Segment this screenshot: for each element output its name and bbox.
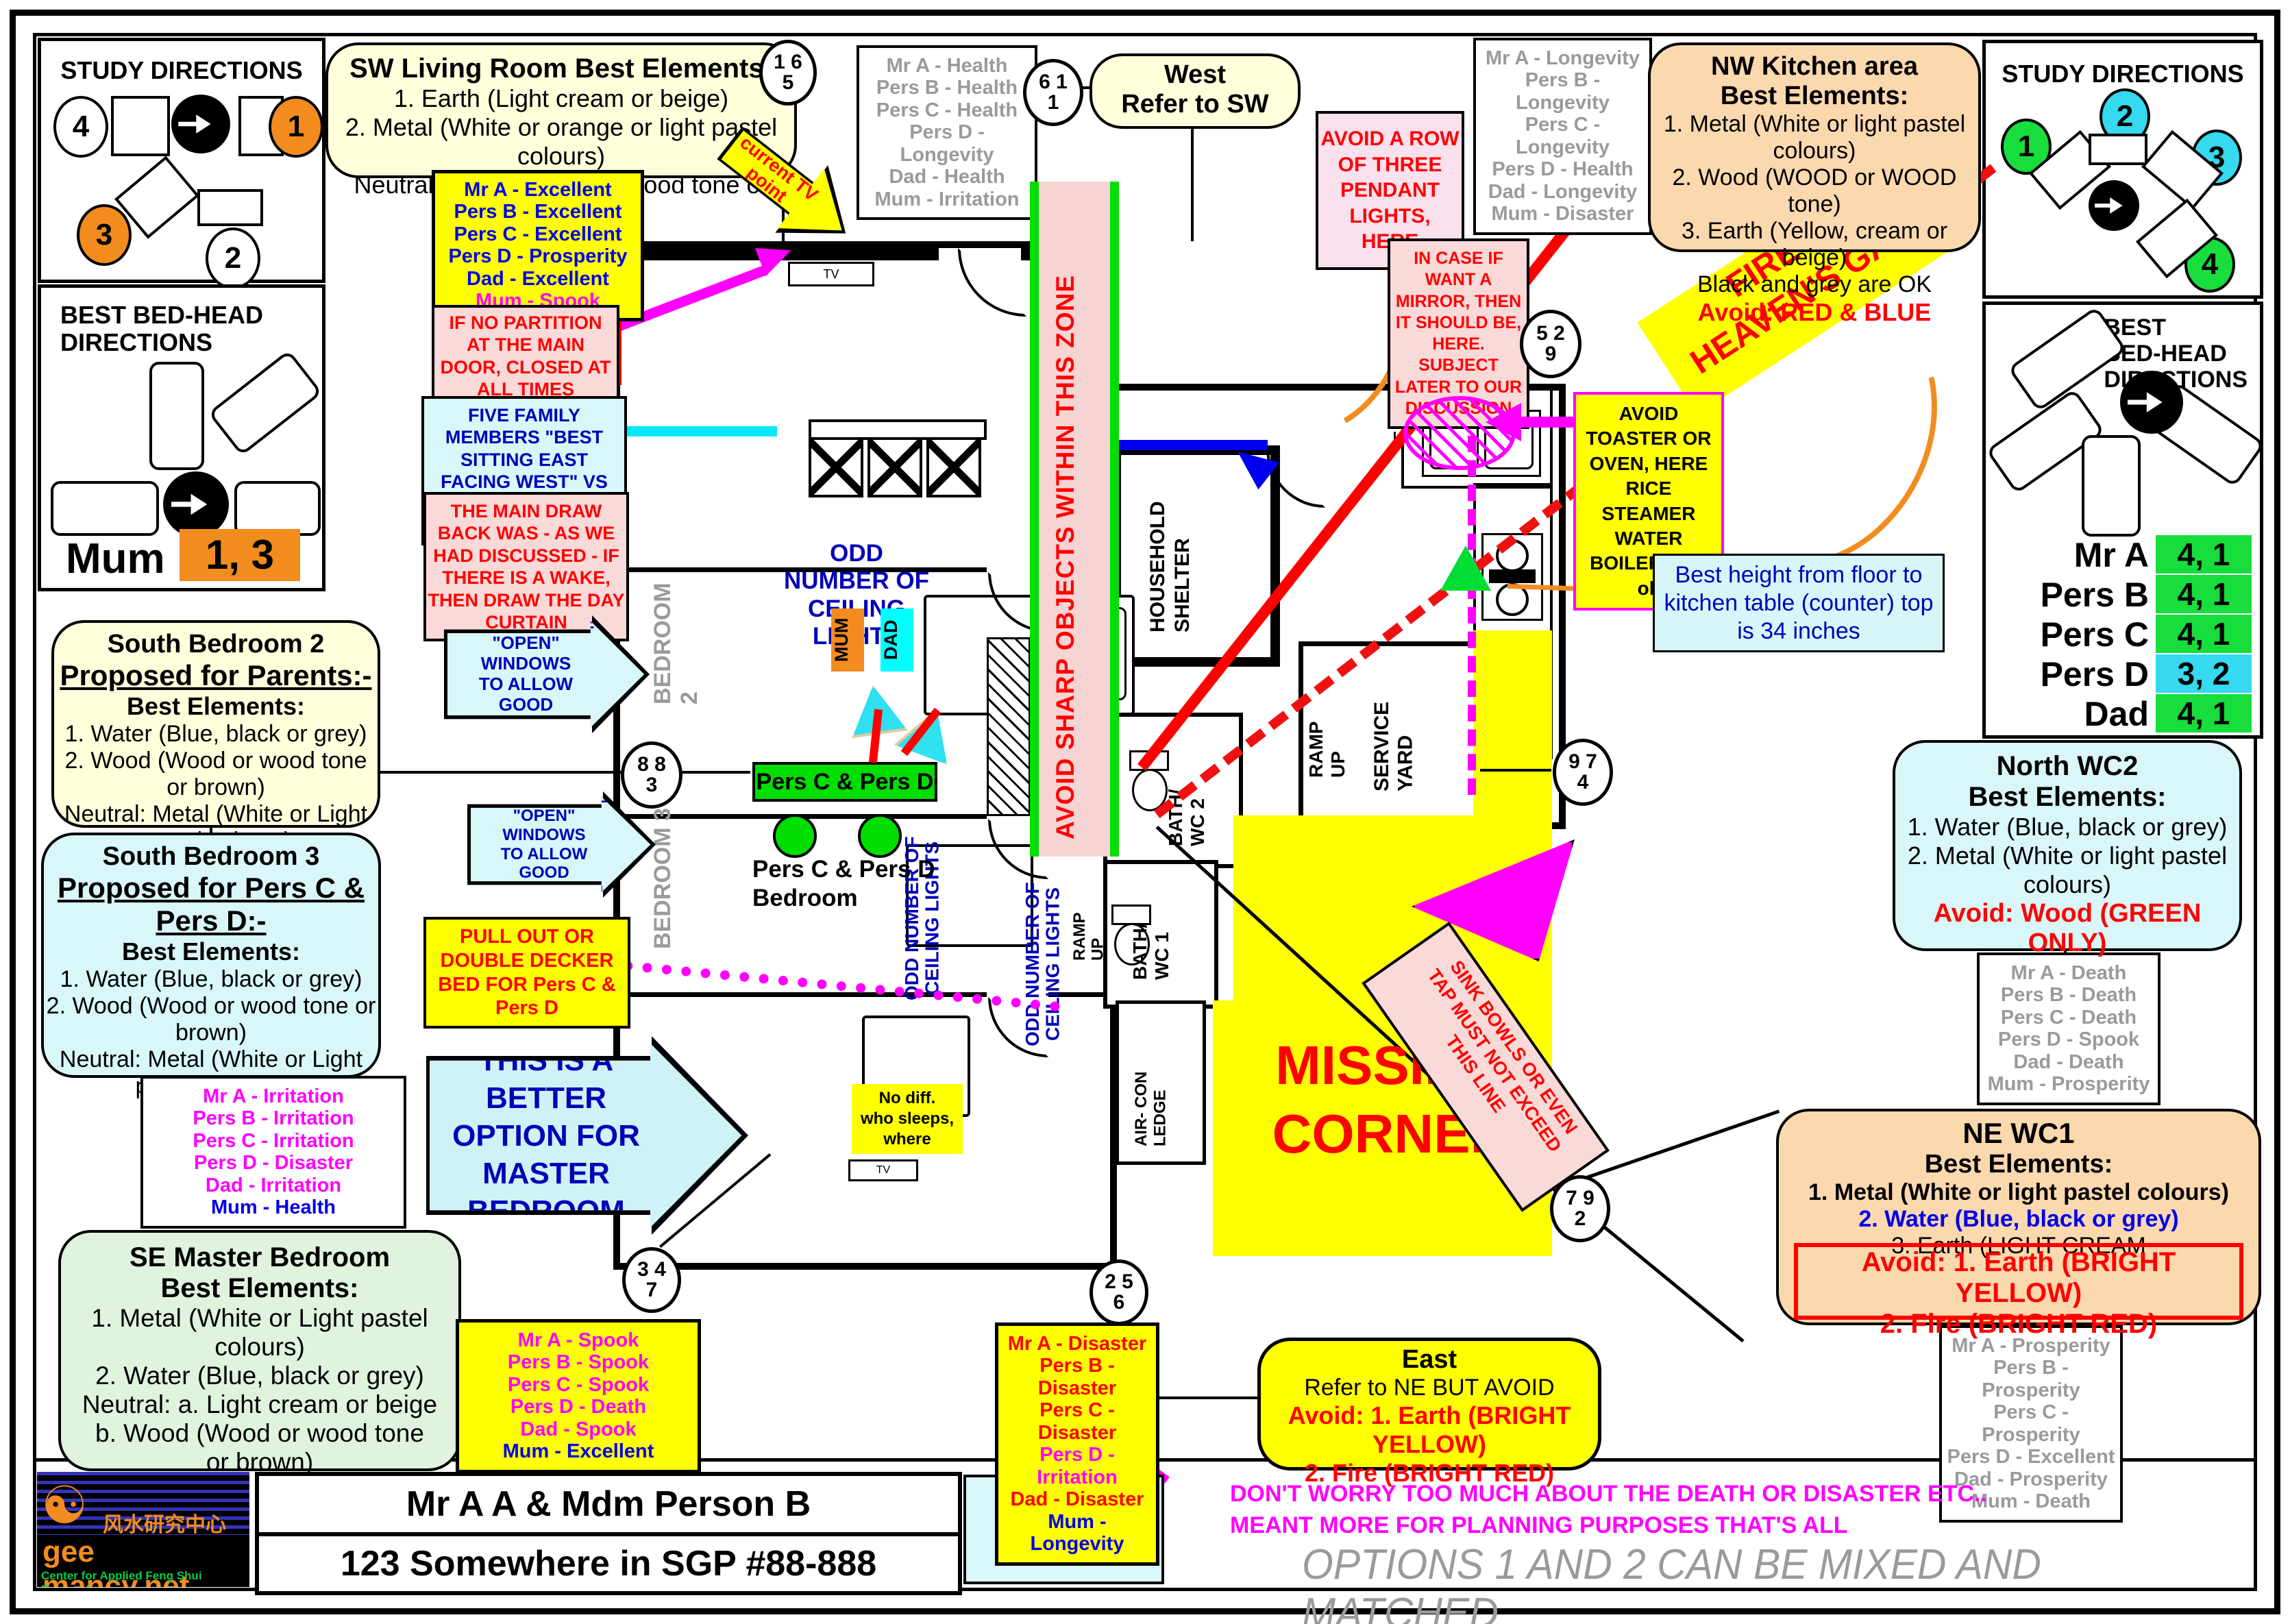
cyan-sitting-line [621, 426, 777, 436]
bedhead-row-name: Dad [2084, 694, 2149, 734]
stars-bottom: 1 [1048, 93, 1059, 113]
sb2-l2: 2. Wood (Wood or wood tone or brown) [54, 748, 378, 801]
member-row: Pers C - Irritation [146, 1130, 401, 1152]
member-row: Pers B - Spook [462, 1351, 695, 1373]
member-row: Mr A - Spook [462, 1329, 695, 1351]
newc1-l1: 1. Metal (White or light pastel colours) [1779, 1179, 2258, 1206]
sb2-l1: 1. Water (Blue, black or grey) [54, 721, 378, 748]
east-members-list: Mr A - DisasterPers B - DisasterPers C -… [995, 1322, 1159, 1566]
stars-bottom: 5 [783, 73, 794, 93]
logo-tagline: Center for Applied Feng Shui Research [41, 1569, 249, 1587]
connector [1191, 118, 1194, 241]
west-sub: Refer to SW [1092, 90, 1298, 119]
bedhead-row-name: Pers D [2041, 654, 2149, 694]
stars-circle-165: 1 65 [759, 40, 817, 106]
bedhead-right-title: BEST BED-HEAD DIRECTIONS [2104, 315, 2248, 393]
member-row: Mum - Disaster [1479, 203, 1647, 225]
aircon-ledge-label: AIR- CON LEDGE [1132, 1013, 1170, 1146]
stars-top: 8 8 [637, 754, 666, 775]
member-row: Mr A - Longevity [1479, 47, 1647, 69]
member-row: Pers D - Longevity [862, 121, 1032, 166]
member-row: Mr A - Death [1982, 962, 2155, 984]
member-row: Dad - Longevity [1479, 181, 1647, 203]
stars-top: 7 9 [1566, 1188, 1595, 1209]
member-row: Pers D - Irritation [1000, 1444, 1155, 1488]
nw-kitchen-l4: Black and grey are OK [1651, 271, 1978, 298]
sb3-be: Best Elements: [44, 937, 378, 966]
stars-bottom: 2 [1575, 1209, 1586, 1229]
bedhead-left-value: 1, 3 [180, 529, 300, 581]
nwc2-sub: Best Elements: [1895, 782, 2239, 813]
avoid-sharp-label: AVOID SHARP OBJECTS WITHIN THIS ZONE [1051, 202, 1080, 839]
green-dot [773, 814, 817, 858]
member-row: Mum - Longevity [1000, 1511, 1155, 1555]
east-l1: Refer to NE BUT AVOID [1261, 1375, 1598, 1401]
member-row: Dad - Disaster [1000, 1488, 1155, 1510]
mum-tag: MUM [831, 608, 864, 672]
se-spook-list: Mr A - SpookPers B - SpookPers C - Spook… [456, 1319, 701, 1473]
sofa-seat [926, 437, 981, 497]
good-qi-arrow-1: GOOD TO HAVE "OPEN" WINDOWS TO ALLOW GOO… [444, 615, 650, 733]
living-members-list: Mr A - ExcellentPers B - ExcellentPers C… [432, 170, 644, 321]
member-row: Mum - Prosperity [1982, 1073, 2155, 1095]
connector [1149, 1397, 1257, 1399]
se-irritation-list: Mr A - IrritationPers B - IrritationPers… [140, 1076, 406, 1229]
pers-cd-bar: Pers C & Pers D [752, 762, 937, 802]
stars-bottom: 7 [646, 1280, 658, 1301]
east-avoid2: 2. Fire (BRIGHT RED) [1261, 1459, 1598, 1488]
stars-top: 5 2 [1536, 323, 1565, 344]
south-bedroom2-box: South Bedroom 2 Proposed for Parents:- B… [51, 620, 380, 828]
nwc2-title: North WC2 [1895, 751, 2239, 782]
east-title: East [1261, 1345, 1598, 1375]
sw-living-title: SW Living Room Best Elements: [328, 53, 794, 84]
nwc2-l1: 1. Water (Blue, black or grey) [1895, 813, 2239, 841]
stars-bottom: 4 [1577, 772, 1589, 793]
west-members-list: Mr A - HealthPers B - HealthPers C - Hea… [857, 45, 1037, 220]
better-option-arrow: THIS IS A BETTER OPTION FOR MASTER BEDRO… [426, 1036, 748, 1235]
stove [1481, 533, 1543, 621]
pull-out-note: PULL OUT OR DOUBLE DECKER BED FOR Pers C… [423, 917, 630, 1029]
study-directions-left-panel: STUDY DIRECTIONS 4 1 3 2 [38, 38, 325, 283]
member-row: Pers C - Prosperity [1945, 1401, 2117, 1446]
bedhead-left-title: BEST BED-HEAD DIRECTIONS [60, 302, 263, 356]
nw-kitchen-l2: 2. Wood (WOOD or WOOD tone) [1651, 164, 1978, 218]
bed-icon [234, 481, 321, 536]
magenta-toaster-arrow-shaft [1516, 417, 1573, 428]
stars-top: 6 1 [1039, 72, 1068, 93]
bedhead-row-name: Mr A [2074, 535, 2149, 575]
north-members-list: Mr A - DeathPers B - DeathPers C - Death… [1977, 952, 2160, 1105]
bed-icon [208, 349, 322, 456]
stars-circle-529: 5 29 [1520, 310, 1581, 378]
member-row: Pers D - Spook [1982, 1029, 2155, 1050]
wall [1298, 644, 1303, 815]
title-block: Mr A A & Mdm Person B 123 Somewhere in S… [255, 1472, 962, 1595]
study-left-title: STUDY DIRECTIONS [41, 56, 322, 85]
bedhead-row-name: Pers B [2041, 575, 2149, 615]
stars-circle-792: 7 92 [1550, 1175, 1610, 1242]
se-title: SE Master Bedroom [61, 1242, 458, 1273]
south-bedroom3-box: South Bedroom 3 Proposed for Pers C & Pe… [41, 833, 381, 1078]
east-avoid1: Avoid: 1. Earth (BRIGHT YELLOW) [1261, 1401, 1598, 1459]
yinyang-icon: ☯ [41, 1475, 88, 1536]
se-l1: 1. Metal (White or Light pastel colours) [61, 1304, 458, 1362]
desk-icon [111, 96, 170, 156]
dont-worry-note: DON'T WORRY TOO MUCH ABOUT THE DEATH OR … [1230, 1479, 2039, 1542]
wardrobe [987, 637, 1031, 816]
member-row: Mum - Irritation [862, 188, 1032, 210]
member-row: Pers C - Death [1982, 1007, 2155, 1029]
stars-bottom: 9 [1545, 344, 1557, 365]
bed-icon [51, 481, 159, 536]
sb2-be: Best Elements: [54, 692, 378, 721]
nwc2-avoid: Avoid: Wood (GREEN ONLY) [1895, 899, 2239, 958]
bedhead-right-panel: BEST BED-HEAD DIRECTIONS Mr A4, 1 Pers B… [1982, 302, 2263, 739]
tv-top: TV [788, 262, 874, 286]
compass-icon [171, 95, 230, 153]
avoid-sharp-strip: AVOID SHARP OBJECTS WITHIN THIS ZONE [1030, 182, 1119, 857]
member-row: Pers B - Health [862, 77, 1032, 99]
client-name: Mr A A & Mdm Person B [259, 1476, 958, 1536]
member-row: Pers C - Excellent [438, 223, 638, 245]
bed-icon [149, 362, 204, 470]
newc1-avoid1: Avoid: 1. Earth (BRIGHT YELLOW) [1798, 1247, 2239, 1309]
dad-tag: DAD [881, 608, 913, 672]
sw-living-l1: 1. Earth (Light cream or beige) [328, 84, 794, 113]
east-box: East Refer to NE BUT AVOID Avoid: 1. Ear… [1257, 1338, 1601, 1471]
bedhead-row-value: 4, 1 [2156, 535, 2252, 574]
bedhead-row-value: 4, 1 [2156, 694, 2252, 733]
stars-circle-611: 6 11 [1023, 59, 1083, 126]
nw-kitchen-avoid: Avoid: RED & BLUE [1651, 298, 1978, 327]
bath-wc1-label: BATH/ WC 1 [1129, 877, 1173, 980]
green-dot [858, 814, 902, 858]
bedroom2-label: BEDROOM 2 [650, 567, 703, 704]
stars-circle-974: 9 74 [1553, 739, 1613, 806]
pers-cd-bedroom-label: Pers C & Pers D Bedroom [752, 855, 935, 913]
member-row: Pers B - Irritation [146, 1107, 401, 1129]
member-row: Pers B - Longevity [1479, 69, 1647, 114]
se-l3: Neutral: a. Light cream or beige b. Wood… [61, 1390, 458, 1477]
sb2-title: South Bedroom 2 [54, 630, 378, 659]
bedhead-row-value: 4, 1 [2156, 615, 2252, 653]
se-master-box: SE Master Bedroom Best Elements: 1. Meta… [58, 1230, 461, 1471]
sb3-title: South Bedroom 3 [44, 842, 378, 872]
household-shelter-label: HOUSEHOLD SHELTER [1146, 465, 1195, 632]
sofa-seats [809, 437, 981, 497]
nw-members-list: Mr A - LongevityPers B - LongevityPers C… [1473, 38, 1652, 235]
sofa-seat [809, 437, 863, 497]
nw-kitchen-sub: Best Elements: [1651, 82, 1978, 111]
study-directions-right-panel: STUDY DIRECTIONS 1 2 3 4 [1982, 40, 2263, 299]
member-row: Pers B - Disaster [1000, 1355, 1155, 1399]
member-row: Dad - Health [862, 166, 1032, 188]
west-title: West [1092, 60, 1298, 90]
member-row: Pers B - Excellent [438, 201, 638, 223]
member-row: Mr A - Excellent [438, 179, 638, 201]
member-row: Dad - Spook [462, 1418, 695, 1440]
bedhead-row-value: 3, 2 [2156, 654, 2252, 693]
study-right-title: STUDY DIRECTIONS [1986, 60, 2260, 88]
better-option-label: THIS IS A BETTER OPTION FOR MASTER BEDRO… [443, 1042, 649, 1230]
logo-chinese: 风水研究中心 [103, 1508, 226, 1538]
compass-icon [2089, 180, 2139, 231]
site-address: 123 Somewhere in SGP #88-888 [259, 1536, 958, 1591]
stars-bottom: 6 [1113, 1292, 1125, 1313]
good-qi-arrow-2: GOOD TO HAVE "OPEN" WINDOWS TO ALLOW GOO… [467, 791, 656, 898]
stars-top: 9 7 [1568, 752, 1597, 772]
member-row: Dad - Irritation [146, 1174, 401, 1196]
compass-icon [163, 471, 229, 537]
study-left-pos3: 3 [77, 204, 132, 266]
nw-kitchen-title: NW Kitchen area [1651, 52, 1978, 82]
member-row: Pers D - Disaster [146, 1152, 401, 1174]
stars-circle-256: 2 56 [1089, 1259, 1148, 1325]
sofa-seat [867, 437, 922, 497]
member-row: Mr A - Irritation [146, 1085, 401, 1107]
bedhead-left-panel: BEST BED-HEAD DIRECTIONS Mum 1, 3 [38, 284, 325, 591]
member-row: Pers D - Health [1479, 158, 1647, 180]
desk-icon [197, 189, 263, 226]
member-row: Pers B - Prosperity [1945, 1357, 2117, 1401]
bed-icon [2082, 435, 2141, 537]
best-height-note: Best height from floor to kitchen table … [1653, 554, 1945, 652]
study-left-pos4: 4 [53, 96, 108, 158]
member-row: Pers B - Death [1982, 984, 2155, 1006]
stars-circle-883: 8 83 [621, 741, 682, 809]
bedhead-left-person: Mum [66, 534, 165, 583]
connector [377, 771, 750, 774]
nw-kitchen-l3: 3. Earth (Yellow, cream or beige) [1651, 218, 1978, 271]
hatched-ellipse [1403, 396, 1516, 470]
study-left-pos2: 2 [206, 227, 260, 289]
ramp-up-label-2: RAMP UP [1071, 865, 1107, 961]
stars-top: 3 4 [637, 1259, 666, 1280]
monitor-icon [2089, 134, 2147, 165]
member-row: Pers D - Excellent [1945, 1446, 2117, 1468]
member-row: Pers C - Spook [462, 1374, 695, 1396]
west-box: West Refer to SW [1089, 53, 1301, 129]
member-row: Pers C - Longevity [1479, 114, 1647, 158]
bedhead-row-value: 4, 1 [2156, 575, 2252, 613]
bedhead-right-table: Mr A4, 1 Pers B4, 1 Pers C4, 1 Pers D3, … [1993, 535, 2252, 734]
tv-top-label: TV [823, 267, 839, 281]
options-note: OPTIONS 1 AND 2 CAN BE MIXED AND MATCHED [1302, 1540, 2213, 1624]
newc1-avoid-box: Avoid: 1. Earth (BRIGHT YELLOW) 2. Fire … [1794, 1243, 2243, 1320]
ne-wc1-box: NE WC1 Best Elements: 1. Metal (White or… [1776, 1109, 2261, 1325]
member-row: Pers D - Death [462, 1396, 695, 1418]
stars-bottom: 3 [646, 775, 658, 796]
member-row: Dad - Excellent [438, 268, 638, 290]
nw-kitchen-l1: 1. Metal (White or light pastel colours) [1651, 111, 1978, 164]
nw-kitchen-box: NW Kitchen area Best Elements: 1. Metal … [1648, 42, 1981, 252]
se-l2: 2. Water (Blue, black or grey) [61, 1362, 458, 1390]
if-no-partition-note: IF NO PARTITION AT THE MAIN DOOR, CLOSED… [432, 305, 619, 408]
service-yard-label: SERVICE YARD [1370, 654, 1418, 791]
member-row: Pers D - Prosperity [438, 245, 638, 267]
tv-bottom-label: TV [876, 1164, 890, 1176]
nwc2-l2: 2. Metal (White or light pastel colours) [1895, 841, 2239, 899]
stove-mid [1489, 569, 1536, 583]
newc1-avoid2: 2. Fire (BRIGHT RED) [1798, 1309, 2239, 1340]
member-row: Pers C - Disaster [1000, 1399, 1155, 1444]
connector [1480, 769, 1551, 772]
study-left-pos1: 1 [269, 96, 323, 158]
newc1-l2: 2. Water (Blue, black or grey) [1779, 1206, 2258, 1233]
member-row: Mum - Excellent [462, 1440, 695, 1462]
logo: ☯ 风水研究中心 gee mancy.net Center for Applie… [37, 1472, 249, 1587]
stars-top: 2 5 [1105, 1272, 1133, 1292]
stars-circle-347: 3 47 [622, 1247, 681, 1313]
north-wc2-box: North WC2 Best Elements: 1. Water (Blue,… [1893, 740, 2242, 951]
member-row: Mr A - Disaster [1000, 1333, 1155, 1355]
compass-icon [2120, 371, 2183, 434]
member-row: Mum - Health [146, 1196, 401, 1218]
sb3-sub: Proposed for Pers C & Pers D:- [44, 872, 378, 937]
stars-top: 1 6 [774, 52, 802, 73]
newc1-sub: Best Elements: [1779, 1150, 2258, 1179]
no-diff-note: No diff. who sleeps, where [852, 1084, 963, 1154]
member-row: Mr A - Health [862, 55, 1032, 77]
member-row: Dad - Death [1982, 1051, 2155, 1073]
se-sub: Best Elements: [61, 1273, 458, 1304]
bedhead-row-name: Pers C [2041, 615, 2149, 654]
member-row: Pers C - Health [862, 99, 1032, 121]
sb2-sub: Proposed for Parents:- [54, 659, 378, 692]
newc1-title: NE WC1 [1779, 1117, 2258, 1150]
sb3-l2: 2. Wood (Wood or wood tone or brown) [44, 993, 378, 1046]
sb3-l1: 1. Water (Blue, black or grey) [44, 966, 378, 993]
odd-lights-vertical-2: ODD NUMBER OF CEILING LIGHTS [1022, 865, 1063, 1063]
tv-bottom: TV [848, 1159, 918, 1181]
feng-shui-floorplan-diagram: STUDY DIRECTIONS 4 1 3 2 BEST BED-HEAD D… [0, 0, 2290, 1624]
